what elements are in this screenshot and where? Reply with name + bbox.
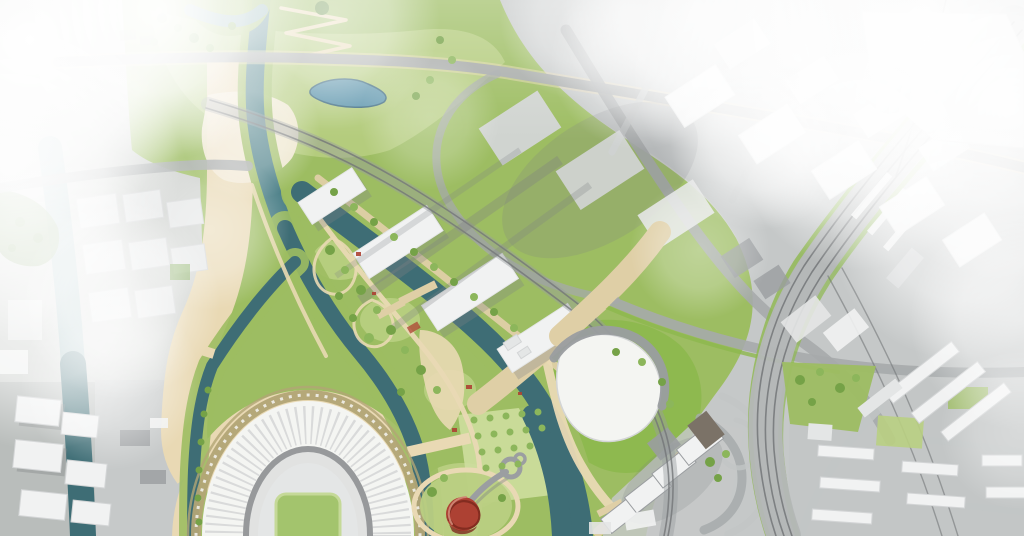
tree bbox=[475, 433, 482, 440]
tree bbox=[499, 463, 506, 470]
tree bbox=[816, 368, 824, 376]
tree bbox=[410, 248, 418, 256]
tree bbox=[349, 314, 357, 322]
tree bbox=[416, 365, 426, 375]
tree bbox=[470, 293, 478, 301]
red-pavilion bbox=[466, 385, 472, 389]
tree bbox=[325, 245, 335, 255]
tree bbox=[714, 474, 722, 482]
warehouse bbox=[140, 470, 166, 484]
tree bbox=[666, 400, 674, 408]
tree bbox=[510, 324, 518, 332]
tree bbox=[335, 292, 343, 300]
tree bbox=[539, 425, 546, 432]
fog-patch bbox=[360, 50, 500, 190]
tree bbox=[527, 443, 534, 450]
tree bbox=[658, 378, 666, 386]
building bbox=[589, 522, 611, 534]
tree bbox=[198, 439, 205, 446]
tree bbox=[196, 467, 203, 474]
tree bbox=[612, 348, 620, 356]
tree bbox=[852, 374, 860, 382]
tree bbox=[479, 449, 486, 456]
stadium-pitch bbox=[276, 494, 340, 536]
masterplan-aerial-map bbox=[0, 0, 1024, 536]
tree bbox=[515, 461, 522, 468]
tree bbox=[430, 263, 438, 271]
tree bbox=[503, 413, 510, 420]
building bbox=[807, 423, 832, 441]
building bbox=[71, 500, 111, 526]
building bbox=[19, 490, 67, 521]
red-pavilion bbox=[372, 292, 376, 295]
tree bbox=[519, 411, 526, 418]
tree bbox=[487, 415, 494, 422]
tree bbox=[535, 409, 542, 416]
tree bbox=[397, 388, 405, 396]
tree bbox=[491, 431, 498, 438]
tree bbox=[195, 495, 202, 502]
fog-patch bbox=[180, 60, 320, 200]
tree bbox=[433, 386, 441, 394]
tree bbox=[808, 398, 816, 406]
tree bbox=[370, 218, 378, 226]
tree bbox=[511, 445, 518, 452]
tree bbox=[390, 233, 398, 241]
tree bbox=[835, 383, 845, 393]
tree bbox=[386, 325, 396, 335]
tree bbox=[401, 346, 409, 354]
red-pavilion bbox=[452, 428, 457, 432]
fog-patch bbox=[20, 200, 220, 400]
tree bbox=[498, 494, 506, 502]
tree bbox=[373, 306, 381, 314]
tree bbox=[196, 519, 203, 526]
fog-patch bbox=[630, 180, 770, 320]
tree bbox=[471, 417, 478, 424]
tree bbox=[356, 285, 366, 295]
red-pavilion bbox=[356, 252, 361, 256]
tree bbox=[341, 266, 349, 274]
tree bbox=[205, 387, 212, 394]
tree bbox=[638, 358, 646, 366]
tree bbox=[722, 450, 730, 458]
tree bbox=[795, 375, 805, 385]
tree bbox=[450, 278, 458, 286]
tree bbox=[427, 487, 437, 497]
tree bbox=[440, 474, 448, 482]
tree bbox=[523, 427, 530, 434]
tree bbox=[705, 457, 715, 467]
tree bbox=[364, 333, 374, 343]
tree bbox=[201, 411, 208, 418]
red-pavilion bbox=[518, 392, 522, 395]
tree bbox=[483, 465, 490, 472]
tree bbox=[330, 188, 338, 196]
tree bbox=[495, 447, 502, 454]
tree bbox=[507, 429, 514, 436]
tree bbox=[350, 203, 358, 211]
tree bbox=[490, 308, 498, 316]
